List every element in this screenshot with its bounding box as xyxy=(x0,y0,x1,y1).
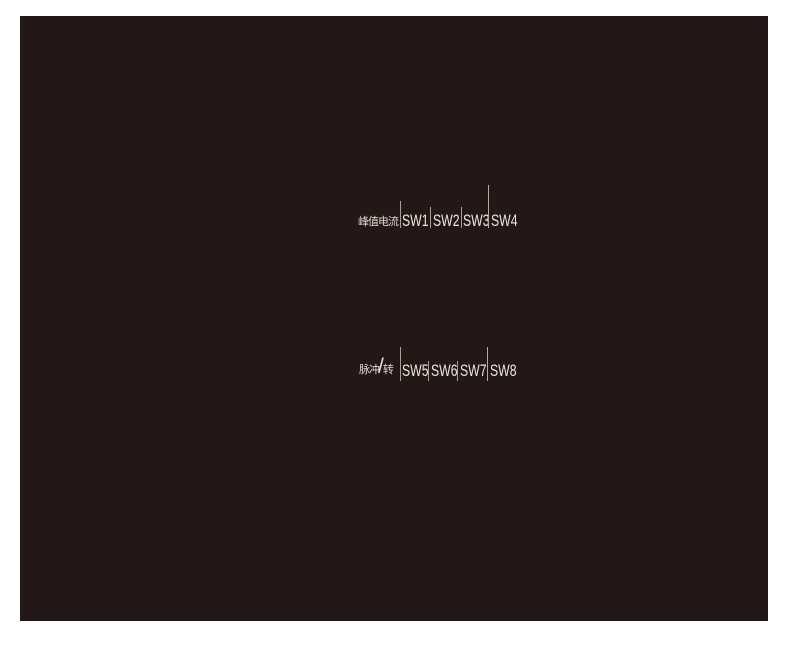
manual-image-panel: 峰值电流 SW1 SW2 SW3 SW4 脉冲 / 转 SW5 SW6 SW7 … xyxy=(20,16,768,621)
switch-label-sw4: SW4 xyxy=(491,212,518,229)
switch-label-sw7: SW7 xyxy=(460,362,487,379)
switch-label-sw3: SW3 xyxy=(463,212,490,229)
row-label-peak-current: 峰值电流 xyxy=(358,217,398,228)
separator-bar xyxy=(430,207,431,228)
row-label-pulses-suffix: 转 xyxy=(383,365,393,376)
separator-bar xyxy=(457,361,458,381)
switch-label-sw2: SW2 xyxy=(433,212,460,229)
separator-bar xyxy=(461,207,462,228)
separator-bar-tall xyxy=(488,185,489,228)
separator-bar xyxy=(428,361,429,381)
page-frame: 峰值电流 SW1 SW2 SW3 SW4 脉冲 / 转 SW5 SW6 SW7 … xyxy=(0,0,800,659)
switch-label-sw1: SW1 xyxy=(402,212,429,229)
separator-bar xyxy=(400,201,401,228)
separator-bar-tall xyxy=(487,347,488,381)
switch-label-sw5: SW5 xyxy=(402,362,429,379)
row-label-pulses-per-rev: 脉冲 / 转 xyxy=(359,356,393,377)
separator-bar-tall xyxy=(400,347,401,381)
row-label-pulses-prefix: 脉冲 xyxy=(359,365,379,376)
switch-label-sw8: SW8 xyxy=(490,362,517,379)
switch-label-sw6: SW6 xyxy=(431,362,458,379)
